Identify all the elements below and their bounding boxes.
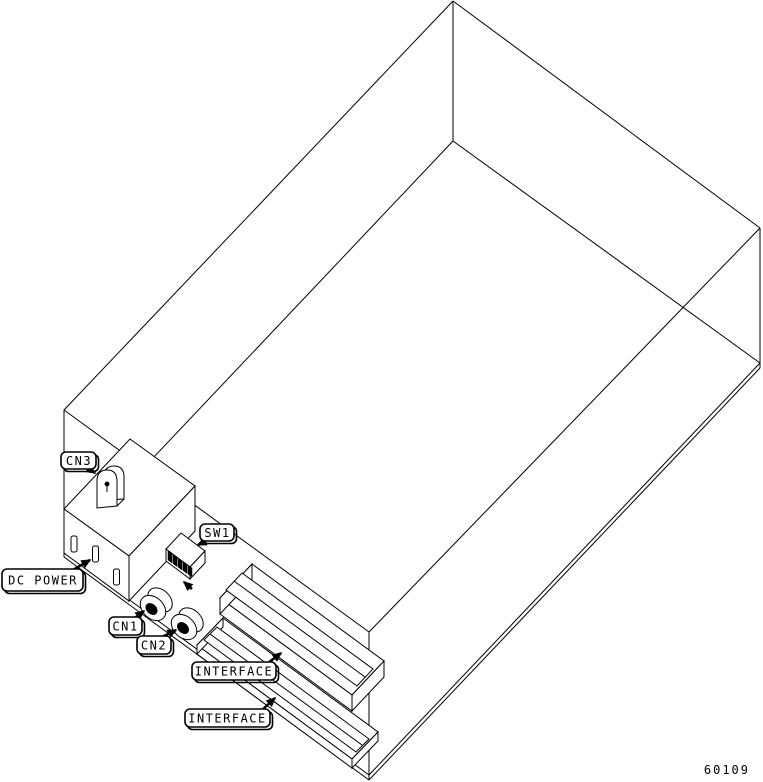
callout-interface-lower: INTERFACE — [185, 698, 275, 730]
callout-cn2: CN2 — [137, 630, 176, 657]
callout-cn3-label: CN3 — [66, 454, 92, 468]
callout-dc-power: DC POWER — [2, 560, 90, 594]
power-pin-slot — [71, 536, 77, 552]
callout-interface-upper-label: INTERFACE — [195, 665, 274, 679]
callout-cn2-label: CN2 — [141, 639, 167, 653]
callout-dc-power-label: DC POWER — [8, 574, 78, 588]
cn3-pin — [105, 482, 109, 486]
power-pin-slot — [114, 569, 120, 585]
dip-direction-arrow — [184, 582, 192, 589]
base-plate-edges — [64, 363, 760, 780]
device-line-drawing: CN3 SW1 DC POWER CN1 CN2 INTERFACE INTER… — [0, 0, 763, 782]
callout-sw1: SW1 — [198, 524, 237, 545]
figure-number: 60109 — [704, 763, 750, 777]
power-pin-slot — [93, 546, 99, 562]
callout-cn1-label: CN1 — [112, 620, 138, 634]
callout-interface-lower-label: INTERFACE — [188, 712, 267, 726]
chassis-wireframe — [64, 1, 760, 775]
diagram-page: CN3 SW1 DC POWER CN1 CN2 INTERFACE INTER… — [0, 0, 763, 782]
callout-cn1: CN1 — [109, 611, 145, 638]
callout-cn3: CN3 — [61, 452, 99, 473]
callout-sw1-label: SW1 — [204, 526, 230, 540]
cn2-jack — [166, 603, 208, 645]
